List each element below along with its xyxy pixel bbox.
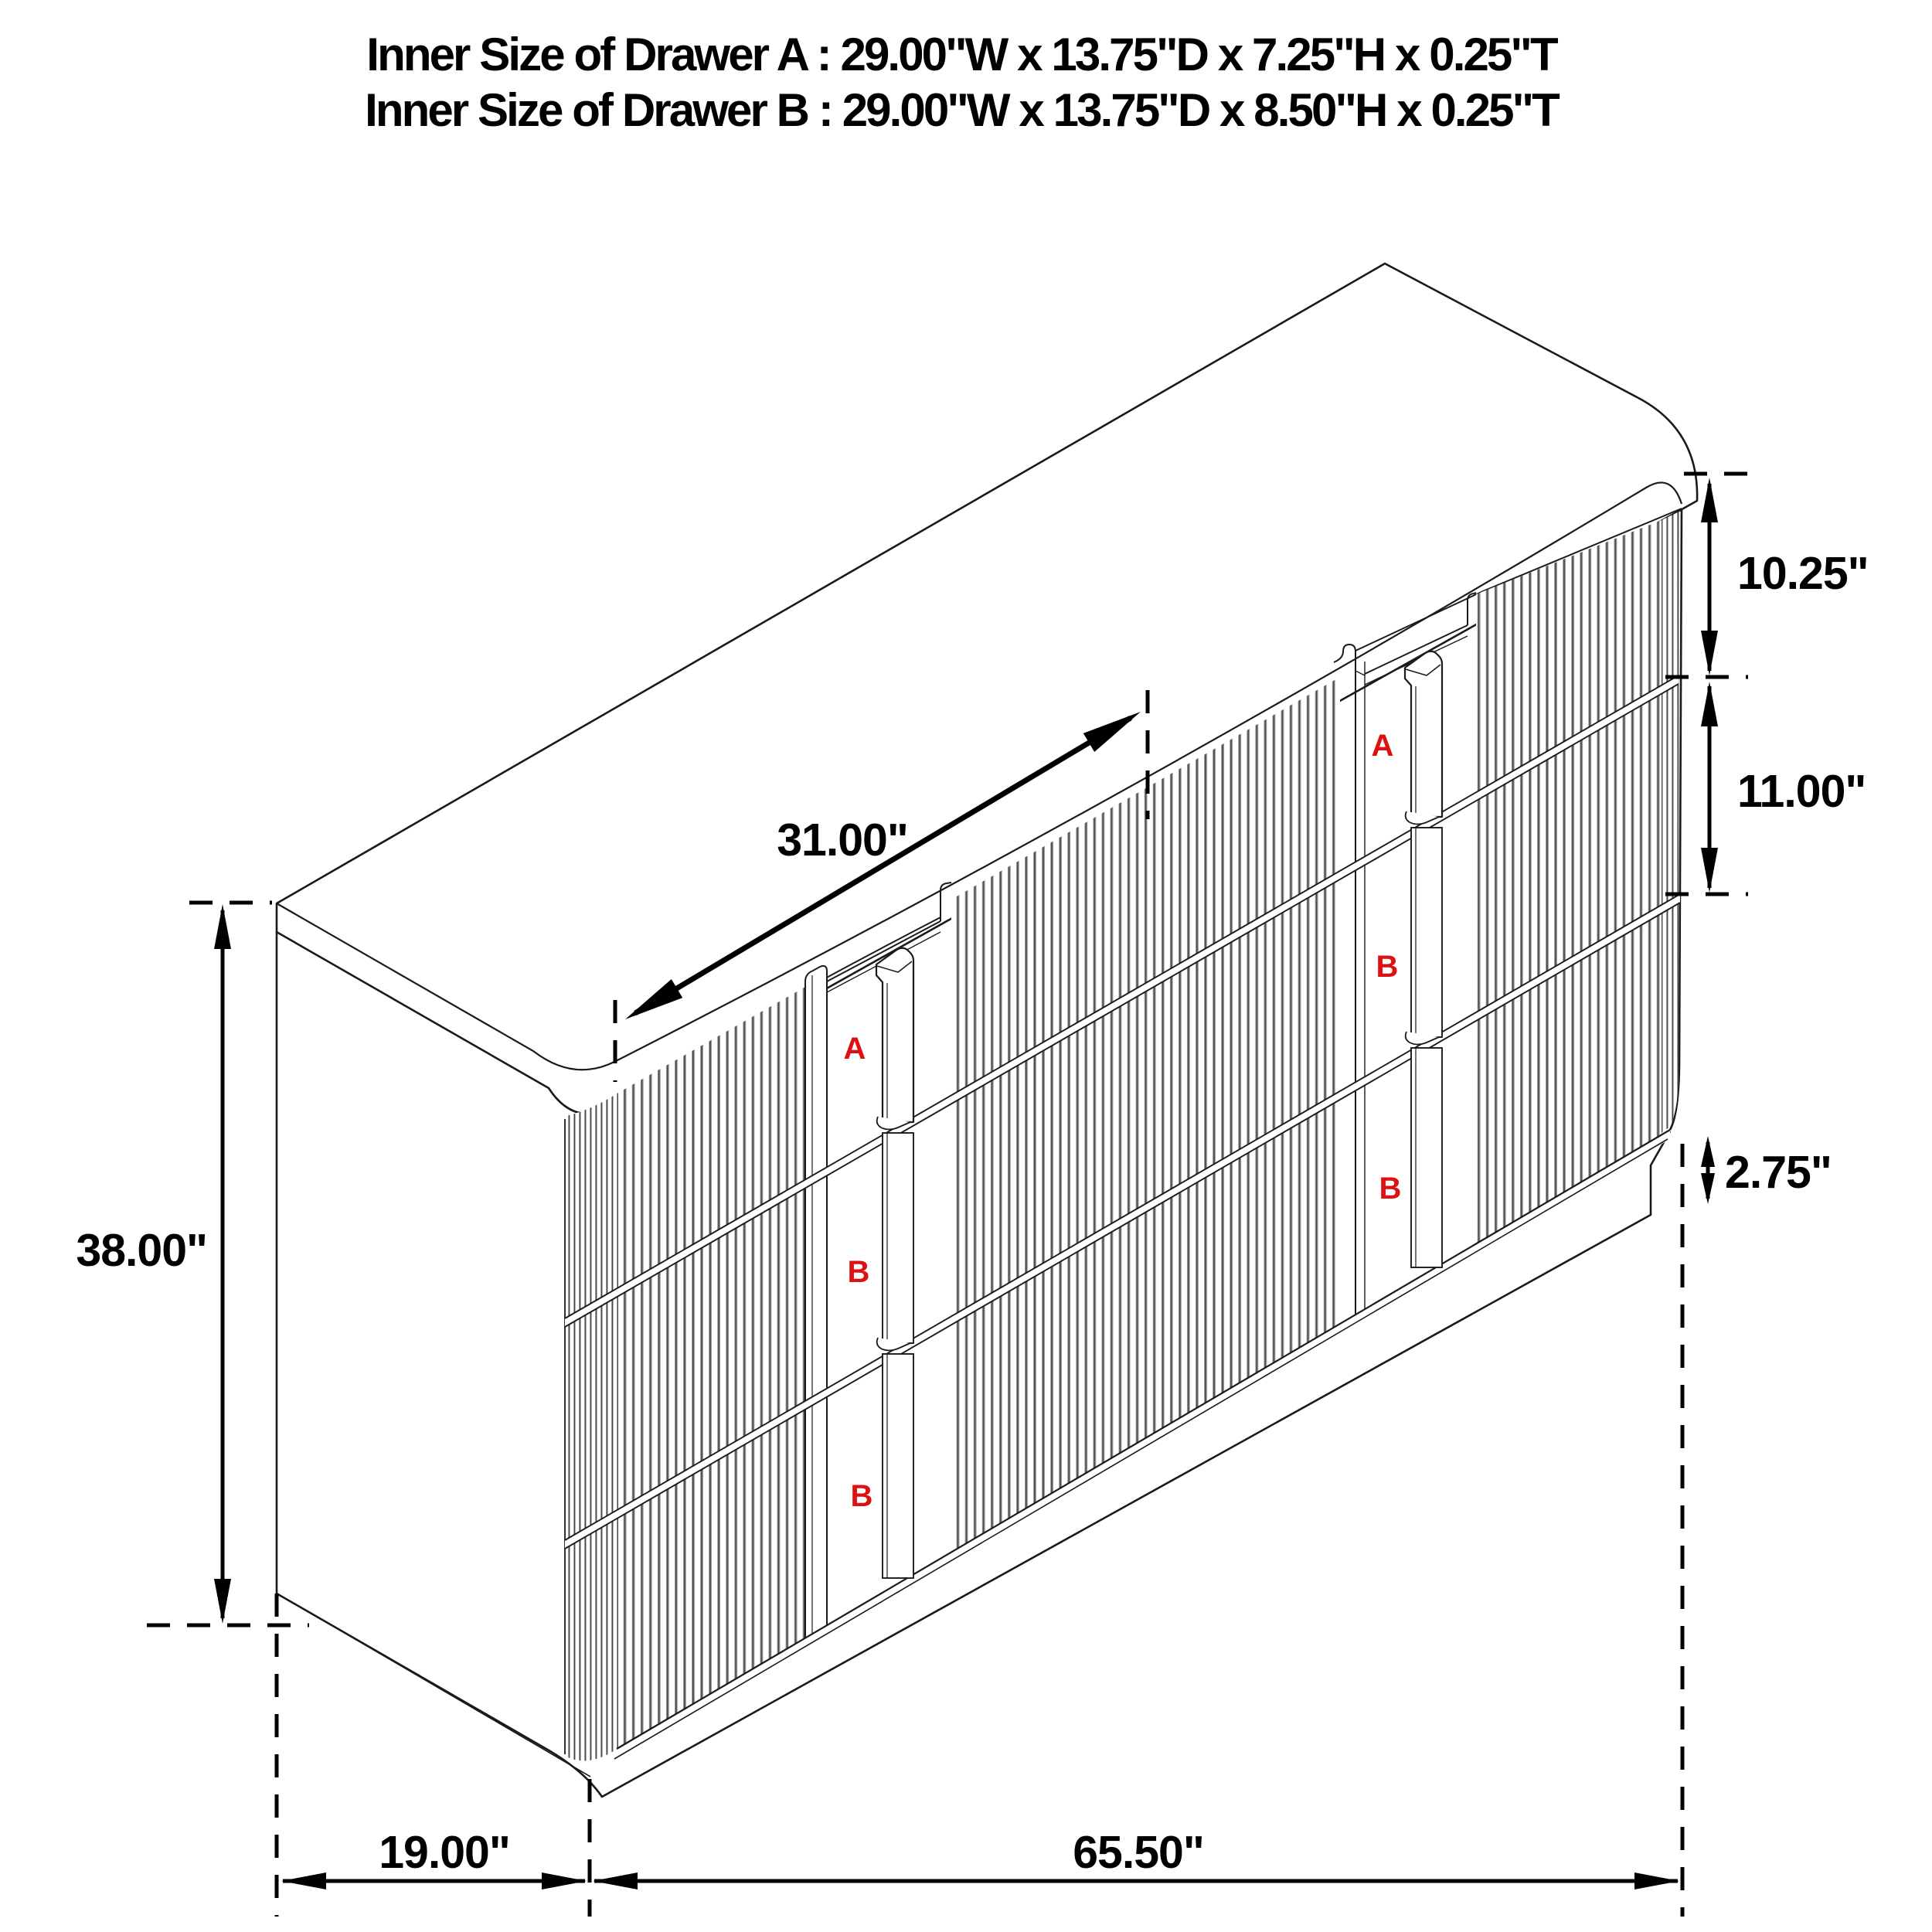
svg-text:10.25": 10.25" xyxy=(1737,548,1869,599)
svg-text:B: B xyxy=(1379,1172,1402,1206)
svg-text:38.00": 38.00" xyxy=(76,1225,207,1276)
svg-text:Inner Size of Drawer A : 29.00: Inner Size of Drawer A : 29.00"W x 13.75… xyxy=(366,29,1558,80)
svg-text:B: B xyxy=(851,1479,873,1513)
svg-text:A: A xyxy=(844,1032,866,1066)
svg-text:B: B xyxy=(1376,950,1399,984)
svg-text:B: B xyxy=(848,1255,870,1289)
svg-text:65.50": 65.50" xyxy=(1073,1827,1204,1878)
svg-text:11.00": 11.00" xyxy=(1737,766,1866,817)
svg-text:31.00": 31.00" xyxy=(777,815,908,866)
svg-text:2.75": 2.75" xyxy=(1725,1147,1832,1198)
svg-text:A: A xyxy=(1372,729,1394,763)
svg-text:Inner Size of Drawer B : 29.00: Inner Size of Drawer B : 29.00"W x 13.75… xyxy=(365,84,1560,136)
svg-text:19.00": 19.00" xyxy=(379,1827,510,1878)
